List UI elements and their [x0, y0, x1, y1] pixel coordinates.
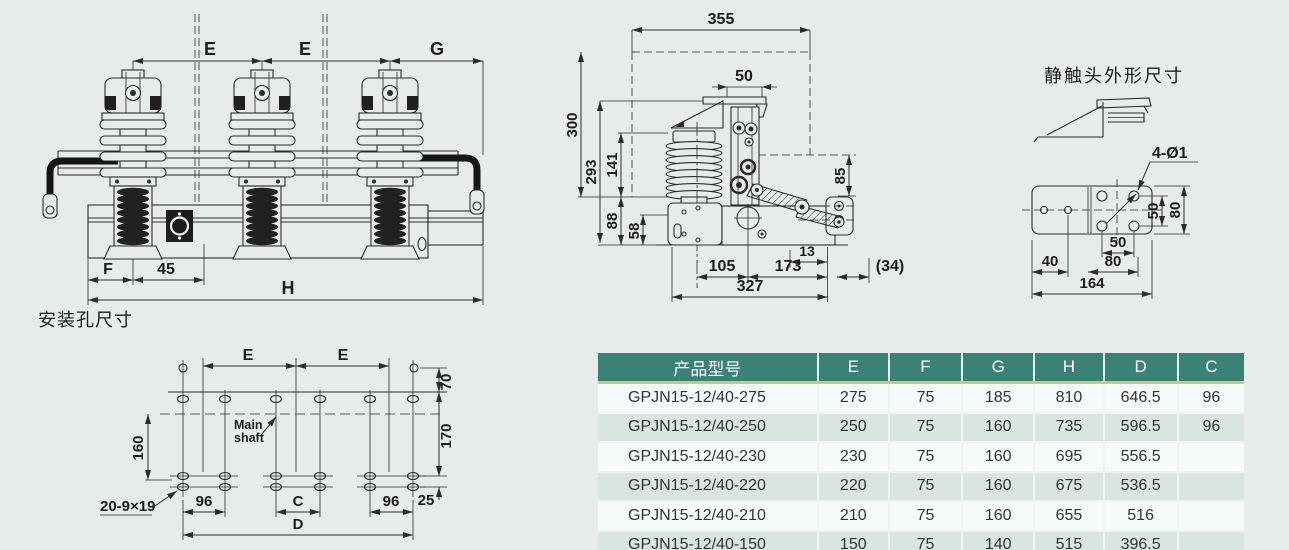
- static-contact-title: 静触头外形尺寸: [1044, 62, 1184, 88]
- value-cell: 75: [889, 442, 962, 472]
- table-row: GPJN15-12/40-25025075160735596.596: [598, 413, 1244, 443]
- value-cell: 75: [889, 383, 962, 413]
- dim-label-h: H: [282, 278, 295, 298]
- table-row: GPJN15-12/40-27527575185810646.596: [598, 383, 1244, 413]
- mount-dim-96b: 96: [383, 493, 400, 510]
- mount-dim-170: 170: [438, 423, 455, 448]
- dim-label-g: G: [430, 39, 444, 59]
- value-cell: [1178, 442, 1244, 472]
- dim-label-293: 293: [583, 159, 600, 184]
- dim-label-13: 13: [799, 243, 815, 259]
- value-cell: 140: [962, 531, 1034, 550]
- value-cell: 556.5: [1104, 442, 1178, 472]
- contact-profile-sketch: [1034, 98, 1151, 142]
- dim-label-e1: E: [204, 39, 216, 59]
- value-cell: 160: [962, 501, 1034, 531]
- main-shaft-label-1: Main: [234, 418, 262, 432]
- drive-coupling: [166, 210, 193, 242]
- table-row: GPJN15-12/40-23023075160695556.5: [598, 442, 1244, 472]
- value-cell: 275: [818, 383, 889, 413]
- table-header-row: 产品型号 E F G H D C: [598, 353, 1244, 383]
- dim-label-355: 355: [708, 11, 735, 28]
- value-cell: 96: [1178, 413, 1244, 443]
- bottom-hole-clusters: [170, 473, 426, 491]
- col-header-e: E: [818, 353, 889, 383]
- dim-label-h80: 80: [1105, 253, 1122, 270]
- value-cell: [1178, 531, 1244, 550]
- table-body: GPJN15-12/40-27527575185810646.596GPJN15…: [598, 383, 1244, 550]
- mount-dim-160: 160: [130, 435, 147, 460]
- mount-dim-25: 25: [418, 492, 435, 509]
- value-cell: 655: [1034, 501, 1103, 531]
- dim-label-v50: 50: [1145, 203, 1162, 220]
- model-cell: GPJN15-12/40-150: [598, 531, 818, 550]
- value-cell: 160: [962, 472, 1034, 502]
- dim-label-58: 58: [626, 223, 643, 240]
- value-cell: 596.5: [1104, 413, 1178, 443]
- col-header-f: F: [889, 353, 962, 383]
- value-cell: 160: [962, 442, 1034, 472]
- col-header-d: D: [1104, 353, 1178, 383]
- model-cell: GPJN15-12/40-250: [598, 413, 818, 443]
- value-cell: 515: [1034, 531, 1103, 550]
- catalog-page: E E G: [0, 0, 1289, 550]
- col-header-c: C: [1178, 353, 1244, 383]
- front-view-drawing: E E G: [43, 14, 484, 305]
- value-cell: 75: [889, 531, 962, 550]
- value-cell: 250: [818, 413, 889, 443]
- value-cell: 96: [1178, 383, 1244, 413]
- value-cell: 75: [889, 501, 962, 531]
- top-hole-row: [178, 396, 419, 403]
- value-cell: 210: [818, 501, 889, 531]
- dim-label-50-top: 50: [735, 68, 753, 85]
- value-cell: 150: [818, 531, 889, 550]
- dim-label-88: 88: [604, 213, 621, 230]
- dim-label-85: 85: [832, 168, 849, 185]
- side-view-drawing: 355 300 293 141 88 58 50: [564, 11, 904, 302]
- dim-label-34: (34): [876, 258, 904, 275]
- dim-label-f: F: [103, 261, 113, 278]
- value-cell: 230: [818, 442, 889, 472]
- value-cell: 185: [962, 383, 1034, 413]
- table-row: GPJN15-12/40-21021075160655516: [598, 501, 1244, 531]
- dim-label-h40: 40: [1042, 253, 1059, 270]
- dim-label-45: 45: [157, 261, 175, 278]
- mount-dim-96a: 96: [196, 493, 213, 510]
- dim-label-327: 327: [737, 278, 764, 295]
- dim-label-164: 164: [1079, 275, 1105, 292]
- mount-dim-c: C: [293, 493, 304, 510]
- dim-label-105: 105: [709, 258, 736, 275]
- dim-label-4holes: 4-Ø1: [1152, 145, 1188, 162]
- table-row: GPJN15-12/40-15015075140515396.5: [598, 531, 1244, 550]
- table-row: GPJN15-12/40-22022075160675536.5: [598, 472, 1244, 502]
- dim-label-h50: 50: [1110, 234, 1127, 251]
- mount-dim-e1: E: [243, 347, 254, 364]
- value-cell: 675: [1034, 472, 1103, 502]
- value-cell: 220: [818, 472, 889, 502]
- dim-label-173: 173: [775, 258, 802, 275]
- value-cell: 396.5: [1104, 531, 1178, 550]
- dim-label-v80: 80: [1167, 202, 1184, 219]
- dim-label-e2: E: [299, 39, 311, 59]
- mounting-holes-title: 安装孔尺寸: [38, 306, 133, 332]
- col-header-g: G: [962, 353, 1034, 383]
- contact-plan-view: 4-Ø1: [1022, 145, 1198, 241]
- slot-holes-label: 20-9×19: [100, 498, 155, 515]
- product-dimension-table: 产品型号 E F G H D C GPJN15-12/40-2752757518…: [598, 353, 1244, 550]
- value-cell: 75: [889, 472, 962, 502]
- mount-dim-d: D: [293, 516, 304, 533]
- model-cell: GPJN15-12/40-210: [598, 501, 818, 531]
- mount-dim-e2: E: [338, 347, 349, 364]
- main-shaft-label-2: shaft: [234, 431, 265, 445]
- static-contact-drawing: 4-Ø1 50 80 50 40 80 164: [1022, 98, 1198, 299]
- col-header-h: H: [1034, 353, 1103, 383]
- value-cell: 536.5: [1104, 472, 1178, 502]
- value-cell: 516: [1104, 501, 1178, 531]
- value-cell: 695: [1034, 442, 1103, 472]
- dim-label-141: 141: [604, 152, 621, 177]
- dim-label-300: 300: [564, 112, 581, 137]
- mount-dim-70: 70: [438, 374, 455, 391]
- model-cell: GPJN15-12/40-230: [598, 442, 818, 472]
- value-cell: 810: [1034, 383, 1103, 413]
- value-cell: 646.5: [1104, 383, 1178, 413]
- side-insulator: [666, 131, 722, 204]
- value-cell: [1178, 501, 1244, 531]
- col-header-model: 产品型号: [598, 353, 818, 383]
- value-cell: 735: [1034, 413, 1103, 443]
- value-cell: 75: [889, 413, 962, 443]
- value-cell: 160: [962, 413, 1034, 443]
- mounting-holes-drawing: E E Main shaft: [100, 347, 455, 540]
- model-cell: GPJN15-12/40-220: [598, 472, 818, 502]
- value-cell: [1178, 472, 1244, 502]
- model-cell: GPJN15-12/40-275: [598, 383, 818, 413]
